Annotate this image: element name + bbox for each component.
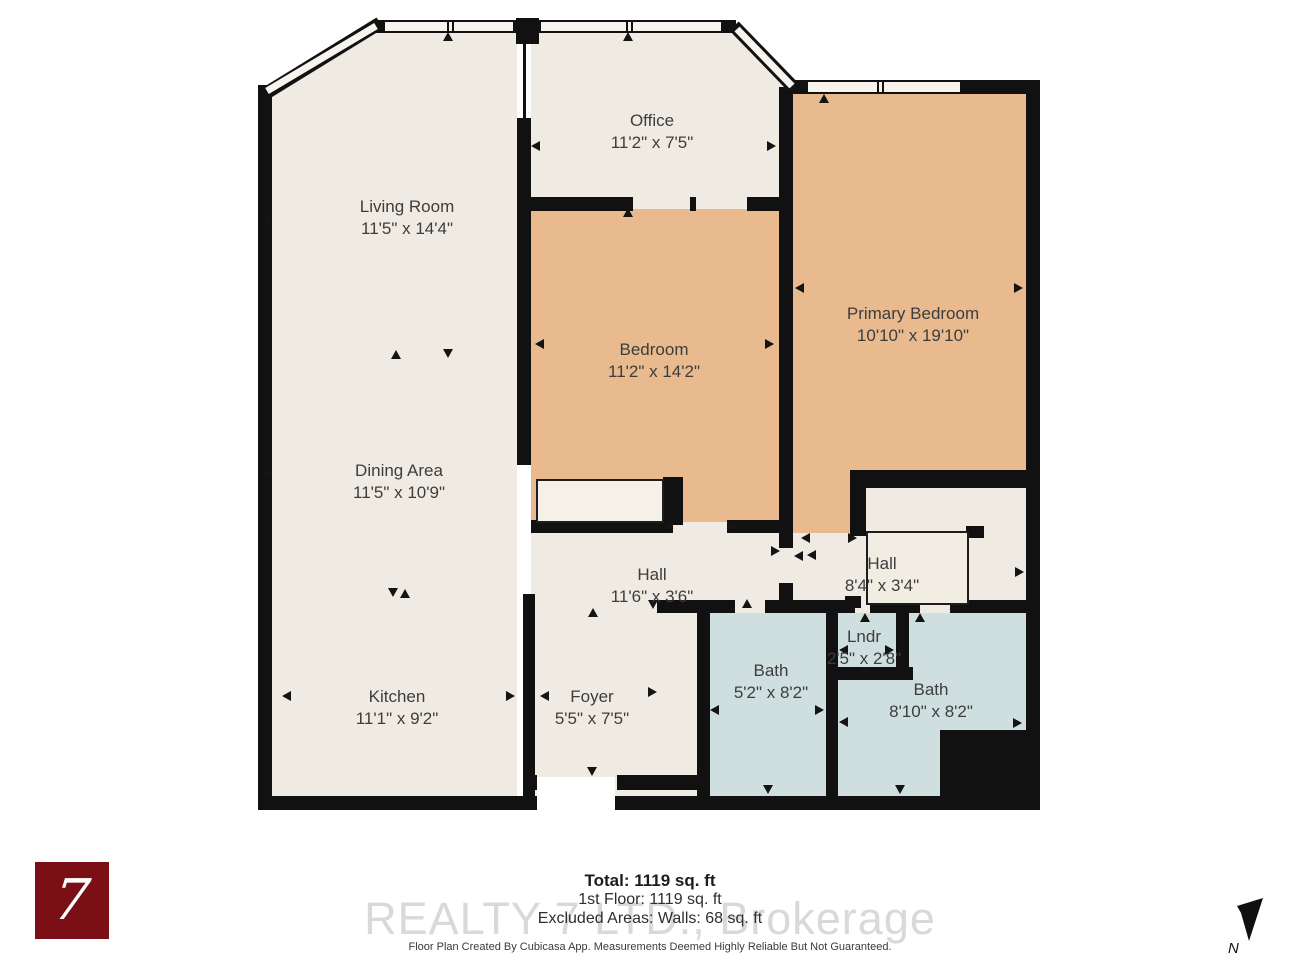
room-name: Living Room [360,196,455,218]
entry-door-opening [537,777,615,810]
room-label-hall-2: Hall 8'4" x 3'4" [845,553,919,597]
room-name: Bath [734,660,808,682]
room-dims: 8'10" x 8'2" [889,701,973,723]
floorplan-page: Living Room 11'5" x 14'4" Office 11'2" x… [0,0,1300,975]
room-dims: 11'2" x 14'2" [608,361,700,383]
room-dims: 10'10" x 19'10" [847,325,979,347]
room-label-bath-2: Bath 8'10" x 8'2" [889,679,973,723]
room-dims: 5'5" x 7'5" [555,708,629,730]
room-label-laundry: Lndr 2'5" x 2'8" [827,626,901,670]
room-name: Foyer [555,686,629,708]
brokerage-logo: 7 [35,862,109,939]
room-label-living-room: Living Room 11'5" x 14'4" [360,196,455,240]
room-name: Bedroom [608,339,700,361]
room-label-office: Office 11'2" x 7'5" [611,110,694,154]
room-dims: 11'5" x 14'4" [360,218,455,240]
room-dims: 8'4" x 3'4" [845,575,919,597]
exterior-notch [940,730,1040,810]
room-dims: 5'2" x 8'2" [734,682,808,704]
halls-door-gap [779,548,793,583]
excluded-area-text: Excluded Areas: Walls: 68 sq. ft [538,909,762,928]
room-name: Lndr [827,626,901,648]
total-area-text: Total: 1119 sq. ft [538,871,762,890]
room-name: Hall [845,553,919,575]
first-floor-text: 1st Floor: 1119 sq. ft [538,890,762,909]
logo-7-icon: 7 [50,862,94,939]
room-name: Primary Bedroom [847,303,979,325]
room-dims: 11'2" x 7'5" [611,132,694,154]
north-label: N [1228,940,1239,957]
room-name: Kitchen [356,686,439,708]
bedroom-closet [537,480,663,522]
room-name: Office [611,110,694,132]
room-label-bedroom: Bedroom 11'2" x 14'2" [608,339,700,383]
living-dining-kitchen-floor [272,25,517,796]
north-arrow-icon [1237,898,1263,941]
room-label-kitchen: Kitchen 11'1" x 9'2" [356,686,439,730]
room-label-dining-area: Dining Area 11'5" x 10'9" [353,460,445,504]
bath1-floor [710,613,826,796]
room-dims: 2'5" x 2'8" [827,648,901,670]
room-dims: 11'5" x 10'9" [353,482,445,504]
room-dims: 11'6" x 3'6" [611,586,694,608]
room-name: Bath [889,679,973,701]
room-label-primary-bedroom: Primary Bedroom 10'10" x 19'10" [847,303,979,347]
room-name: Dining Area [353,460,445,482]
room-label-bath-1: Bath 5'2" x 8'2" [734,660,808,704]
disclaimer-text: Floor Plan Created By Cubicasa App. Meas… [408,941,891,953]
room-label-hall: Hall 11'6" x 3'6" [611,564,694,608]
room-name: Hall [611,564,694,586]
area-summary: Total: 1119 sq. ft 1st Floor: 1119 sq. f… [538,871,762,928]
room-label-foyer: Foyer 5'5" x 7'5" [555,686,629,730]
room-dims: 11'1" x 9'2" [356,708,439,730]
